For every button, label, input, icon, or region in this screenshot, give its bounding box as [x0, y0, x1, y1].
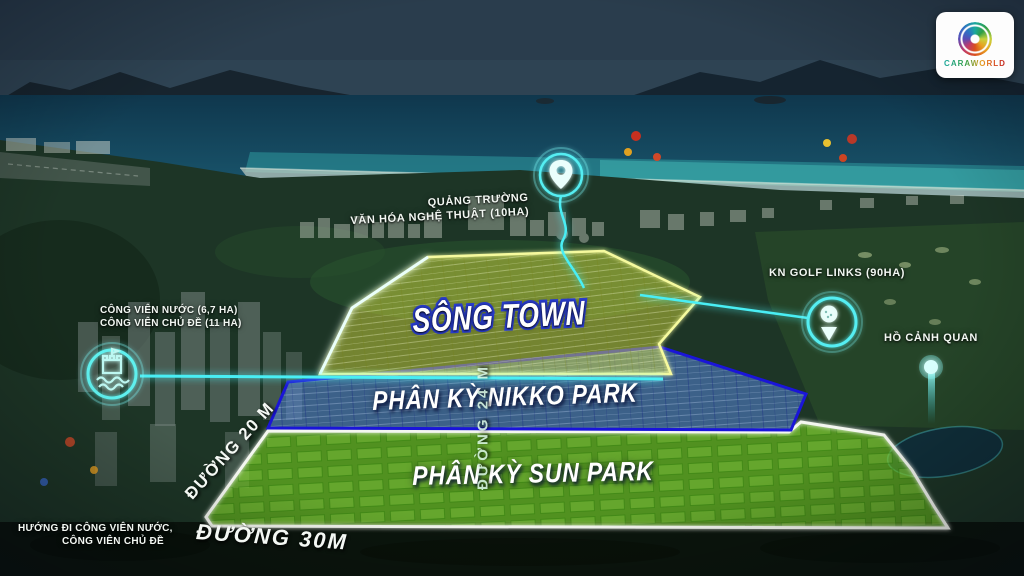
lake-label: HỒ CẢNH QUAN: [850, 331, 1012, 345]
caraworld-flower-icon: [958, 22, 992, 56]
direction-label-line2: CÔNG VIÊN CHỦ ĐỀ: [18, 535, 164, 548]
water-park-label-line2: CÔNG VIÊN CHỦ ĐỀ (11 HA): [100, 317, 234, 330]
caraworld-logo: CARAWORLD: [936, 12, 1014, 78]
road-label-24m: ĐƯỜNG 24 M: [475, 364, 492, 490]
direction-label: HƯỚNG ĐI CÔNG VIÊN NƯỚC, CÔNG VIÊN CHỦ Đ…: [18, 522, 164, 548]
zone-label-sun-park: PHÂN KỲ SUN PARK: [412, 456, 654, 492]
caraworld-logo-text: CARAWORLD: [944, 59, 1006, 68]
water-park-label-line1: CÔNG VIÊN NƯỚC (6,7 HA): [100, 304, 234, 317]
masterplan-image: SÔNG TOWN SÔNG TOWN PHÂN KỲ NIKKO PARK P…: [0, 0, 1024, 576]
direction-label-line1: HƯỚNG ĐI CÔNG VIÊN NƯỚC,: [18, 522, 164, 535]
golf-label: KN GOLF LINKS (90HA): [753, 266, 921, 280]
zone-label-song-town: SÔNG TOWN SÔNG TOWN: [412, 294, 586, 341]
water-park-label: CÔNG VIÊN NƯỚC (6,7 HA) CÔNG VIÊN CHỦ ĐỀ…: [100, 304, 234, 330]
